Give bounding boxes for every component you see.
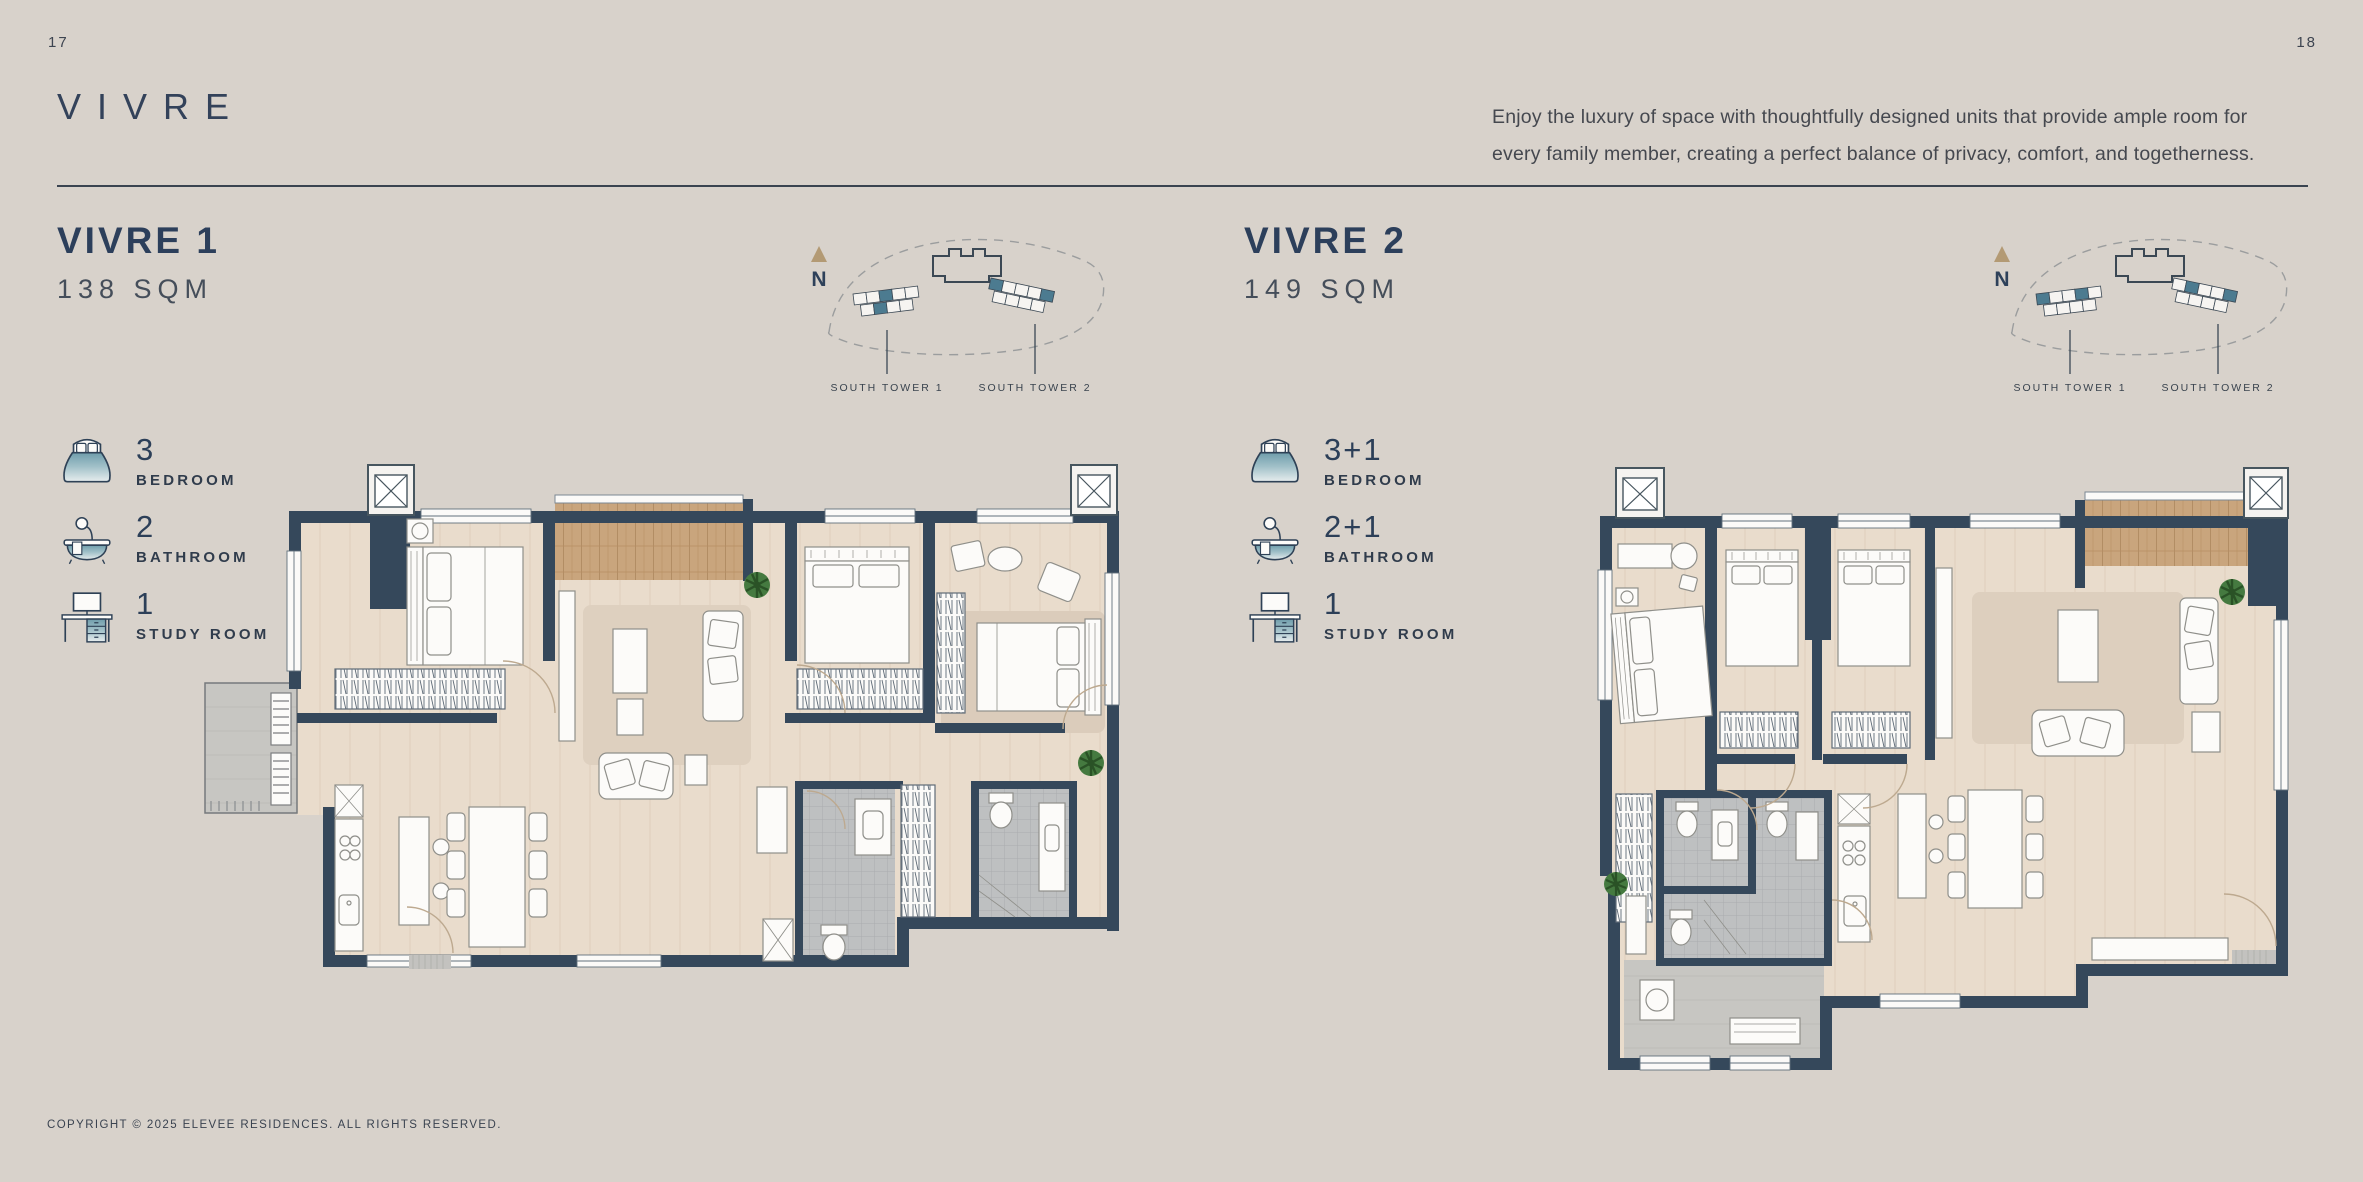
unit1-name: VIVRE 1	[57, 220, 220, 262]
bathtub-icon	[1246, 511, 1304, 569]
south-tower-2-label: SOUTH TOWER 2	[2161, 382, 2274, 394]
desk-icon	[1246, 588, 1304, 646]
south-tower-1-label: SOUTH TOWER 1	[2013, 382, 2126, 394]
south-tower-2-label: SOUTH TOWER 2	[978, 382, 1091, 394]
south-tower-2-footprint	[2169, 278, 2237, 314]
bed-icon	[1246, 434, 1304, 492]
unit2-bathroom-count: 2+1	[1324, 511, 1437, 542]
compass-letter: N	[1994, 268, 2009, 291]
header-divider	[57, 185, 2308, 187]
unit2-bathroom-spec: 2+1 BATHROOM	[1246, 511, 1576, 569]
unit2-specs: 3+1 BEDROOM 2+1 BATHROOM 1	[1246, 434, 1576, 665]
unit1-header: VIVRE 1 138 SQM	[57, 220, 220, 305]
intro-description: Enjoy the luxury of space with thoughtfu…	[1492, 99, 2310, 173]
unit2-header: VIVRE 2 149 SQM	[1244, 220, 1407, 305]
south-tower-1-footprint	[853, 286, 920, 317]
south-tower-1-footprint	[2036, 286, 2103, 317]
page-title: VIVRE	[57, 86, 245, 128]
unit2-bedroom-count: 3+1	[1324, 434, 1425, 465]
unit2-study-label: STUDY ROOM	[1324, 626, 1457, 643]
south-tower-1-label: SOUTH TOWER 1	[830, 382, 943, 394]
bed-icon	[58, 434, 116, 492]
unit2-name: VIVRE 2	[1244, 220, 1407, 262]
page-number-left: 17	[48, 34, 69, 51]
floor-plan-vivre-2	[1580, 460, 2295, 1080]
page-number-right: 18	[2296, 34, 2317, 51]
north-compass-icon: N	[811, 246, 827, 291]
unit2-bedroom-spec: 3+1 BEDROOM	[1246, 434, 1576, 492]
unit2-bedroom-label: BEDROOM	[1324, 472, 1425, 489]
desk-icon	[58, 588, 116, 646]
north-building-footprint	[933, 249, 1001, 282]
bathtub-icon	[58, 511, 116, 569]
description-line-2: every family member, creating a perfect …	[1492, 143, 2255, 165]
site-plan-vivre-1: N SOUTH TOWER 1 SOUTH TOWER 2	[795, 228, 1145, 406]
site-plan-vivre-2: N SOUTH TOWER 1 SOUTH TOWER 2	[1978, 228, 2328, 406]
copyright-text: COPYRIGHT © 2025 ELEVEE RESIDENCES. ALL …	[47, 1119, 502, 1131]
unit2-bathroom-label: BATHROOM	[1324, 549, 1437, 566]
north-compass-icon: N	[1994, 246, 2010, 291]
compass-letter: N	[811, 268, 826, 291]
unit2-area: 149 SQM	[1244, 274, 1407, 305]
north-building-footprint	[2116, 249, 2184, 282]
unit2-study-count: 1	[1324, 588, 1457, 619]
south-tower-2-footprint	[986, 278, 1054, 314]
unit2-study-spec: 1 STUDY ROOM	[1246, 588, 1576, 646]
description-line-1: Enjoy the luxury of space with thoughtfu…	[1492, 106, 2247, 128]
unit1-area: 138 SQM	[57, 274, 220, 305]
floor-plan-vivre-1	[185, 455, 1125, 1035]
